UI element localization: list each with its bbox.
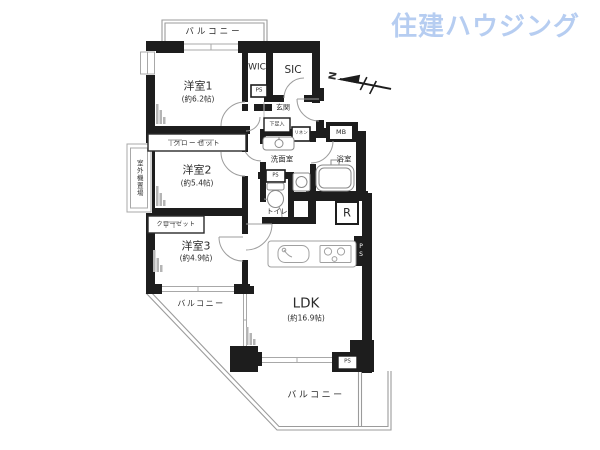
- outdoor-unit-label: 室外機置場: [136, 159, 143, 197]
- window-ldk-bottom: [262, 354, 332, 366]
- ldk-size: (約16.9帖): [287, 314, 325, 322]
- bathtub-icon: [316, 160, 354, 191]
- washroom-label: 洗面室: [271, 155, 294, 163]
- genkan-label: 玄関: [276, 105, 290, 112]
- mb-label: MB: [336, 129, 346, 136]
- washing-machine-icon: [293, 173, 310, 191]
- shoe-cabinet-label: 下足入: [269, 123, 284, 128]
- company-logo: 住建ハウジング: [391, 6, 580, 43]
- washbasin-icon: [263, 137, 294, 150]
- door-bedroom3: [219, 237, 243, 261]
- toilet-icon: [267, 183, 284, 208]
- window-bedroom3-bottom: [162, 284, 234, 294]
- bedroom2-label: 洋室2: [183, 165, 212, 176]
- bedroom1-size: (約6.2帖): [182, 95, 215, 103]
- ps4-label: PS: [272, 174, 278, 179]
- bedroom3-label: 洋室3: [182, 241, 211, 252]
- kitchen-sink-icon: [278, 246, 309, 263]
- balcony-bottom-label: バルコニー: [287, 392, 344, 401]
- stove-icon: [320, 246, 351, 263]
- door-bedroom1: [221, 102, 245, 126]
- balcony-top-label: バルコニー: [185, 28, 242, 37]
- door-sic: [284, 78, 304, 98]
- ps3-label: PS: [344, 359, 351, 365]
- closet2-label: クローゼット: [156, 222, 195, 228]
- window-bedroom1-bay: [139, 51, 156, 75]
- door-bedroom2: [221, 152, 245, 176]
- floorplan-page: 住建ハウジング バルコニー 洋室1 (約6.2帖) WIC SIC PS 玄関 …: [0, 0, 600, 450]
- balcony-left-label: バルコニー: [177, 300, 224, 308]
- kitchen-counter: [268, 241, 356, 267]
- bedroom3-size: (約4.9帖): [180, 254, 213, 262]
- north-arrow-icon: [335, 71, 392, 98]
- ps2-label: PS: [358, 243, 364, 259]
- bedroom2-size: (約5.4帖): [181, 179, 214, 187]
- wic-label: WIC: [248, 64, 266, 73]
- sic-label: SIC: [284, 65, 301, 76]
- linen-label: リネン: [294, 132, 308, 137]
- toilet-label: トイレ: [267, 209, 288, 216]
- ps1-label: PS: [256, 88, 263, 94]
- ldk-label: LDK: [293, 297, 320, 311]
- bathroom-label: 浴室: [337, 155, 352, 163]
- refrigerator-label: R: [343, 207, 351, 219]
- door-bath: [311, 141, 333, 163]
- north-label: N: [328, 71, 339, 81]
- closet1-label: クローゼット: [173, 139, 221, 146]
- window-bedroom1-top: [184, 41, 238, 53]
- bedroom1-label: 洋室1: [184, 81, 213, 92]
